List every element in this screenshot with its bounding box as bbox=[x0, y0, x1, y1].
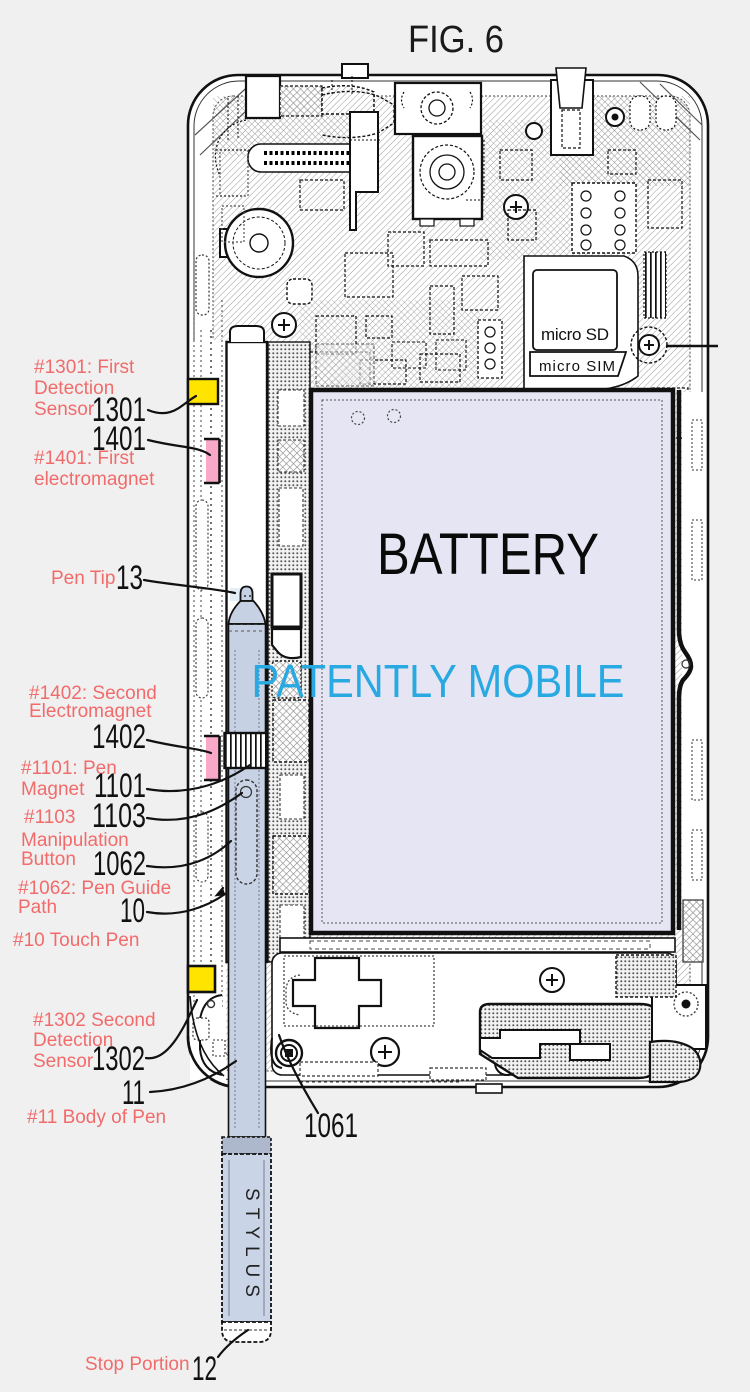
svg-text:1062: 1062 bbox=[93, 845, 146, 883]
svg-text:#1301: First: #1301: First bbox=[34, 357, 135, 378]
svg-text:#1302 Second: #1302 Second bbox=[33, 1010, 156, 1031]
svg-text:micro SIM: micro SIM bbox=[539, 358, 615, 375]
svg-text:FIG. 6: FIG. 6 bbox=[408, 19, 504, 61]
svg-text:Path: Path bbox=[18, 897, 57, 918]
svg-text:Sensor: Sensor bbox=[34, 399, 95, 420]
svg-text:Magnet: Magnet bbox=[21, 779, 85, 800]
svg-text:Button: Button bbox=[21, 849, 76, 870]
svg-text:1103: 1103 bbox=[92, 797, 146, 835]
svg-text:Pen Tip: Pen Tip bbox=[51, 568, 115, 589]
svg-text:12: 12 bbox=[192, 1350, 217, 1388]
svg-text:1402: 1402 bbox=[92, 718, 146, 756]
svg-text:micro SD: micro SD bbox=[541, 325, 609, 344]
svg-text:13: 13 bbox=[116, 559, 143, 597]
svg-text:#10 Touch Pen: #10 Touch Pen bbox=[13, 930, 139, 951]
svg-text:1061: 1061 bbox=[304, 1107, 358, 1145]
svg-text:BATTERY: BATTERY bbox=[377, 522, 599, 587]
svg-text:11: 11 bbox=[122, 1074, 145, 1112]
svg-text:#11 Body of Pen: #11 Body of Pen bbox=[27, 1107, 166, 1128]
svg-text:Stop Portion: Stop Portion bbox=[85, 1354, 190, 1375]
svg-text:1401: 1401 bbox=[92, 420, 146, 458]
svg-text:electromagnet: electromagnet bbox=[34, 469, 155, 490]
svg-text:STYLUS: STYLUS bbox=[241, 1188, 262, 1304]
svg-text:10: 10 bbox=[120, 892, 145, 930]
svg-text:1302: 1302 bbox=[92, 1040, 145, 1078]
svg-text:Sensor: Sensor bbox=[33, 1051, 94, 1072]
svg-text:PATENTLY MOBILE: PATENTLY MOBILE bbox=[252, 655, 625, 707]
svg-text:#1103: #1103 bbox=[24, 807, 75, 828]
